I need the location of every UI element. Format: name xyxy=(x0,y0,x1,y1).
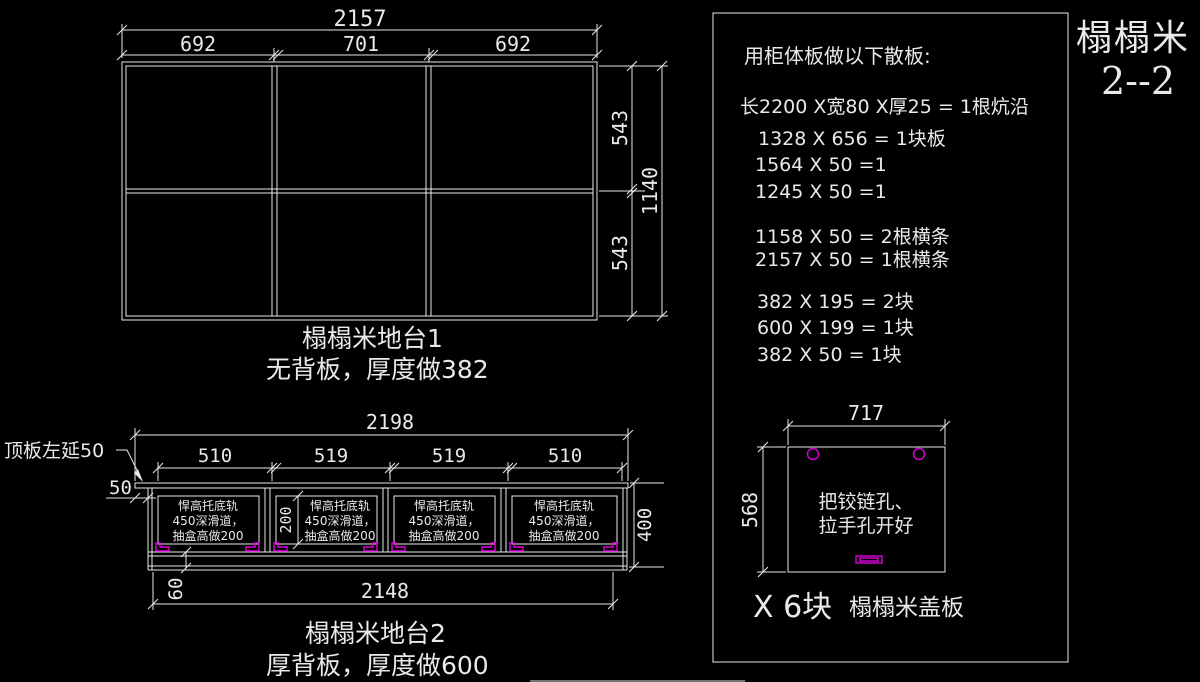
svg-text:悍高托底轨: 悍高托底轨 xyxy=(414,498,474,513)
sheet-title-line2: 2--2 xyxy=(1101,59,1175,103)
svg-text:450深滑道，: 450深滑道， xyxy=(173,514,244,528)
dim-height-1: 543 xyxy=(608,110,632,146)
platform1-dim-ticks xyxy=(117,25,667,321)
svg-text:450深滑道，: 450深滑道， xyxy=(305,514,376,528)
svg-text:悍高托底轨: 悍高托底轨 xyxy=(534,498,594,513)
dim-width-3: 692 xyxy=(495,32,531,56)
cover-board-text: 717 568 把铰链孔、 拉手孔开好 X 6块 榻榻米盖板 xyxy=(738,401,964,625)
notes-panel-text: 用柜体板做以下散板: 长2200 X宽80 X厚25 = 1根炕沿 1328 X… xyxy=(740,44,1029,366)
cover-dim-height: 568 xyxy=(738,492,762,528)
dim-top-width: 2198 xyxy=(366,410,414,434)
cover-count-label: X 6块 xyxy=(753,590,832,625)
platform1-caption-line1: 榻榻米地台1 xyxy=(302,324,443,353)
platform1-dimension-lines xyxy=(122,24,668,316)
cover-note-line2: 拉手孔开好 xyxy=(818,515,913,537)
drawer-note-3: 悍高托底轨 450深滑道， 抽盒高做200 xyxy=(409,498,480,543)
platform1-dim-text: 2157 692 701 692 543 543 1140 xyxy=(180,7,662,271)
drawer-note-1: 悍高托底轨 450深滑道， 抽盒高做200 xyxy=(173,498,244,543)
panel-line-8: 382 X 50 = 1块 xyxy=(757,344,902,366)
leader-note: 顶板左延50 xyxy=(4,440,104,462)
panel-line-0: 长2200 X宽80 X厚25 = 1根炕沿 xyxy=(740,96,1029,118)
platform2-caption-line1: 榻榻米地台2 xyxy=(305,619,446,648)
platform2-caption: 榻榻米地台2 厚背板，厚度做600 xyxy=(266,619,489,680)
platform1-frame xyxy=(122,62,597,320)
drawer-note-2: 悍高托底轨 450深滑道， 抽盒高做200 xyxy=(305,498,376,543)
sheet-title-line1: 榻榻米 xyxy=(1076,18,1190,59)
dim-total-width: 2157 xyxy=(334,7,387,32)
dim-drawer-height: 200 xyxy=(277,506,295,533)
platform1-caption-line2: 无背板，厚度做382 xyxy=(266,355,489,384)
handle-hole-inner xyxy=(860,558,878,561)
cad-drawing-screenshot: 2157 692 701 692 543 543 1140 榻榻米地台1 无背板… xyxy=(0,0,1200,682)
panel-heading: 用柜体板做以下散板: xyxy=(744,44,931,68)
cover-name-label: 榻榻米盖板 xyxy=(849,595,964,621)
svg-text:抽盒高做200: 抽盒高做200 xyxy=(409,528,480,543)
svg-text:抽盒高做200: 抽盒高做200 xyxy=(173,528,244,543)
drawer-note-4: 悍高托底轨 450深滑道， 抽盒高做200 xyxy=(529,498,600,543)
svg-text:抽盒高做200: 抽盒高做200 xyxy=(529,528,600,543)
dim-bottom-width: 2148 xyxy=(361,579,409,603)
panel-line-2: 1564 X 50 =1 xyxy=(755,154,887,176)
panel-line-4: 1158 X 50 = 2根横条 xyxy=(755,226,950,248)
panel-line-7: 600 X 199 = 1块 xyxy=(757,317,914,339)
dim-section-2: 519 xyxy=(314,445,348,467)
dim-overhang: 50 xyxy=(109,477,132,499)
panel-line-1: 1328 X 656 = 1块板 xyxy=(758,128,946,150)
dim-width-2: 701 xyxy=(343,32,379,56)
svg-text:悍高托底轨: 悍高托底轨 xyxy=(310,498,370,513)
dim-section-3: 519 xyxy=(432,445,466,467)
cad-canvas: 2157 692 701 692 543 543 1140 榻榻米地台1 无背板… xyxy=(0,0,1200,682)
dim-height: 400 xyxy=(634,508,656,542)
panel-line-3: 1245 X 50 =1 xyxy=(755,181,887,203)
platform2-caption-line2: 厚背板，厚度做600 xyxy=(266,651,489,680)
dim-total-height: 1140 xyxy=(638,167,662,215)
platform1-caption: 榻榻米地台1 无背板，厚度做382 xyxy=(266,324,489,384)
cover-dim-width: 717 xyxy=(848,401,884,425)
sheet-title: 榻榻米 2--2 xyxy=(1076,18,1190,103)
panel-line-5: 2157 X 50 = 1根横条 xyxy=(755,249,950,271)
dim-section-4: 510 xyxy=(548,445,582,467)
svg-text:450深滑道，: 450深滑道， xyxy=(409,514,480,528)
dim-base-height: 60 xyxy=(165,578,187,601)
cover-note-line1: 把铰链孔、 xyxy=(818,491,913,513)
dim-section-1: 510 xyxy=(198,445,232,467)
svg-text:450深滑道，: 450深滑道， xyxy=(529,514,600,528)
panel-line-6: 382 X 195 = 2块 xyxy=(757,291,914,313)
svg-text:抽盒高做200: 抽盒高做200 xyxy=(305,528,376,543)
svg-text:悍高托底轨: 悍高托底轨 xyxy=(178,498,238,513)
hinge-hole-left xyxy=(808,449,819,460)
hinge-hole-right xyxy=(914,449,925,460)
dim-height-2: 543 xyxy=(608,235,632,271)
dim-width-1: 692 xyxy=(180,32,216,56)
